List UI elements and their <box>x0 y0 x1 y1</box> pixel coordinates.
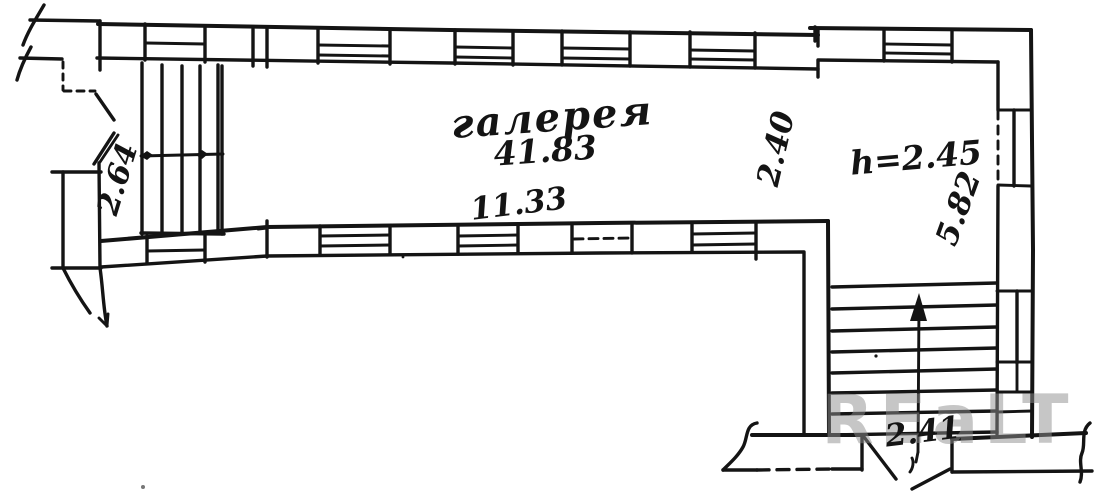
east-wall <box>997 30 1033 437</box>
north-wall-offset-section <box>810 27 1031 62</box>
top-left-wall-fragment <box>17 5 100 91</box>
room-area-label: 41.83 <box>492 127 598 173</box>
floor-plan-scan: REaLT галерея 41.83 11.33 2.40 h=2.45 5.… <box>0 0 1108 497</box>
east-wall-windows <box>997 110 1032 412</box>
left-staircase <box>140 63 224 234</box>
left-stair-width-dimension: 2.64 <box>90 139 145 220</box>
gallery-length-dimension: 11.33 <box>468 180 569 228</box>
side-room-depth-dimension: 5.82 <box>929 167 989 250</box>
gallery-width-dimension: 2.40 <box>750 108 802 191</box>
floor-plan-svg: REaLT галерея 41.83 11.33 2.40 h=2.45 5.… <box>0 0 1108 497</box>
scan-noise <box>141 256 878 489</box>
